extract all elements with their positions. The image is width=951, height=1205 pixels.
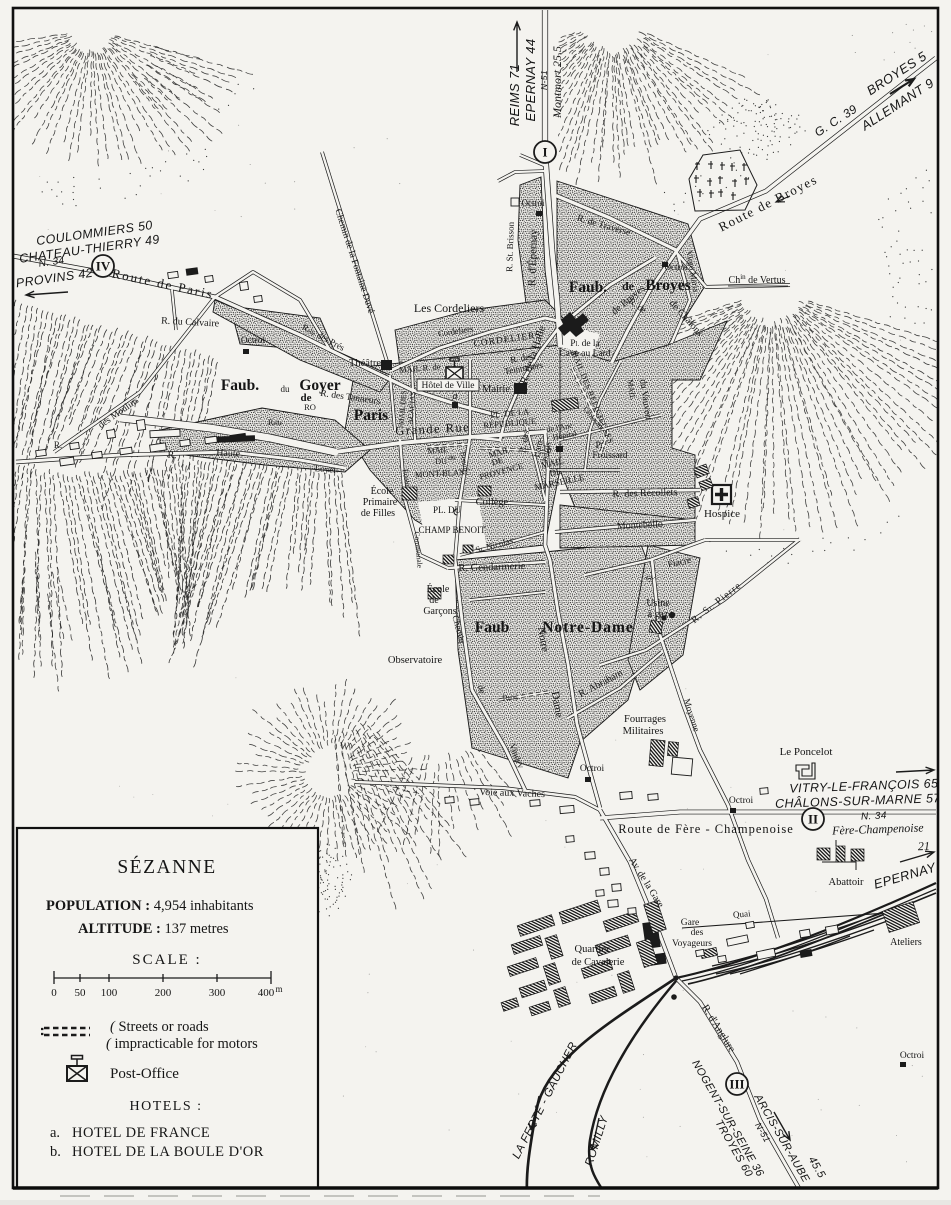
svg-text:Route de Fère - Champenoise: Route de Fère - Champenoise (618, 822, 794, 836)
svg-text:b.: b. (50, 1144, 61, 1160)
svg-text:( Streets or roads: ( Streets or roads (110, 1019, 209, 1035)
svg-text:Les Cordeliers: Les Cordeliers (414, 301, 485, 315)
svg-text:Octroi: Octroi (522, 198, 545, 208)
svg-text:Montmort 25.5: Montmort 25.5 (550, 46, 564, 119)
svg-text:Octroi: Octroi (241, 336, 266, 346)
svg-text:Le Poncelot: Le Poncelot (780, 746, 833, 758)
svg-text:Faub.: Faub. (569, 279, 607, 296)
svg-text:Notre-Dame: Notre-Dame (542, 619, 633, 636)
svg-text:RO: RO (304, 402, 316, 412)
svg-text:du: du (448, 453, 456, 462)
svg-text:MAIL: MAIL (427, 445, 448, 456)
svg-text:SCALE :: SCALE : (132, 952, 201, 968)
svg-text:R.: R. (54, 440, 62, 450)
svg-text:Primaire: Primaire (363, 497, 398, 508)
svg-text:Pl.: Pl. (596, 441, 605, 451)
svg-text:Hospice: Hospice (704, 508, 740, 520)
svg-text:Voie aux Vaches: Voie aux Vaches (479, 787, 545, 800)
svg-text:REIMS 71: REIMS 71 (507, 64, 522, 126)
svg-text:50: 50 (75, 987, 87, 999)
svg-text:Quai: Quai (733, 908, 752, 920)
svg-text:ALTITUDE : 137 metres: ALTITUDE : 137 metres (78, 921, 229, 937)
svg-text:des: des (691, 928, 704, 938)
svg-text:m: m (275, 984, 282, 994)
svg-text:de Cavalerie: de Cavalerie (572, 957, 625, 968)
svg-text:Froissard: Froissard (592, 451, 628, 461)
svg-text:0: 0 (51, 987, 57, 999)
svg-text:Fourrages: Fourrages (624, 714, 666, 725)
svg-text:Loyet: Loyet (314, 463, 336, 475)
svg-text:a.: a. (50, 1125, 60, 1141)
svg-text:SÉZANNE: SÉZANNE (117, 856, 216, 878)
svg-text:Observatoire: Observatoire (388, 655, 443, 666)
svg-text:de: de (429, 595, 439, 606)
svg-text:R. Gendarmerie: R. Gendarmerie (458, 561, 526, 574)
svg-text:du: du (281, 384, 291, 394)
svg-text:R. St. Brisson: R. St. Brisson (504, 221, 516, 272)
svg-text:Chin de Vertus: Chin de Vertus (729, 273, 786, 286)
svg-text:POPULATION : 4,954 inhabitants: POPULATION : 4,954 inhabitants (46, 898, 254, 914)
svg-text:Garçons: Garçons (423, 606, 456, 617)
svg-text:de Filles: de Filles (361, 508, 395, 519)
svg-text:N-51: N-51 (539, 70, 549, 90)
svg-text:Hôtel de Ville: Hôtel de Ville (421, 381, 474, 391)
svg-text:HOTELS :: HOTELS : (129, 1099, 202, 1114)
svg-text:III: III (729, 1077, 744, 1092)
svg-text:Paris: Paris (354, 407, 388, 424)
svg-text:400: 400 (258, 987, 275, 999)
svg-text:R. des Récollets: R. des Récollets (612, 487, 677, 500)
svg-text:Faub.: Faub. (221, 377, 259, 394)
svg-text:I: I (542, 145, 547, 160)
svg-text:R.: R. (167, 450, 177, 461)
svg-text:Voyageurs: Voyageurs (672, 939, 712, 949)
svg-text:R. d'Épernay: R. d'Épernay (526, 229, 540, 287)
svg-text:Broyes: Broyes (645, 277, 690, 294)
svg-text:Faub: Faub (475, 619, 509, 636)
svg-text:PL. DU: PL. DU (433, 505, 462, 515)
svg-text:Octroi: Octroi (900, 1051, 925, 1061)
svg-text:École: École (371, 485, 394, 497)
svg-text:100: 100 (101, 987, 118, 999)
svg-text:Collège: Collège (476, 497, 509, 508)
svg-text:Ateliers: Ateliers (890, 937, 922, 948)
svg-text:HOTEL DE FRANCE: HOTEL DE FRANCE (72, 1125, 210, 1141)
svg-text:Haute: Haute (216, 447, 241, 459)
svg-text:Théâtre: Théâtre (349, 358, 381, 369)
svg-text:IV: IV (96, 259, 111, 274)
svg-text:N. 34: N. 34 (861, 810, 887, 822)
svg-text:Quartier: Quartier (575, 944, 610, 955)
svg-text:à gaz: à gaz (648, 609, 669, 620)
svg-text:École: École (427, 583, 450, 595)
svg-text:a: a (453, 391, 458, 402)
svg-text:Usine: Usine (646, 598, 670, 609)
svg-text:Octroi: Octroi (665, 262, 688, 272)
svg-text:Gare: Gare (681, 918, 699, 928)
svg-text:( impracticable for motors: ( impracticable for motors (106, 1036, 258, 1052)
svg-text:Mairie: Mairie (482, 384, 510, 395)
svg-text:Octroi: Octroi (729, 796, 754, 806)
svg-text:CHAMP BENOIT: CHAMP BENOIT (419, 525, 486, 535)
svg-text:Post-Office: Post-Office (110, 1066, 179, 1082)
svg-text:Militaires: Militaires (623, 726, 664, 737)
svg-text:HOTEL DE LA BOULE D'OR: HOTEL DE LA BOULE D'OR (72, 1144, 264, 1160)
svg-text:200: 200 (155, 987, 172, 999)
svg-text:b: b (547, 445, 552, 456)
svg-text:300: 300 (209, 987, 226, 999)
svg-text:Pl. de la: Pl. de la (570, 339, 600, 349)
svg-text:DU: DU (435, 457, 447, 466)
svg-text:Abattoir: Abattoir (829, 877, 864, 888)
svg-text:EPERNAY 44: EPERNAY 44 (523, 38, 538, 121)
svg-text:Octroi: Octroi (580, 764, 605, 774)
svg-text:II: II (808, 812, 818, 827)
svg-text:Cave au Lard: Cave au Lard (559, 349, 610, 359)
